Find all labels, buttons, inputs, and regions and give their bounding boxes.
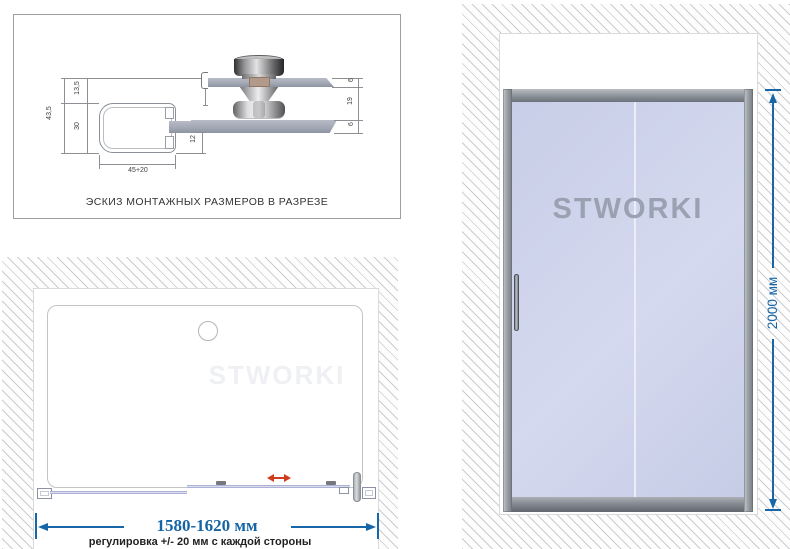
top-view-panel: STWORKI 1580-1620 мм регулировка +/- 20 … [2,257,398,549]
dim-end-tick [765,509,781,511]
roller-symbol [326,481,336,485]
dim-line-segment [291,526,367,528]
dim-end-tick [765,89,781,91]
fixed-glass-section [206,78,334,87]
ext-line [61,153,99,154]
ext-line [61,78,201,79]
ext-line [61,103,99,104]
dim-top-offset: 13,5 [74,73,82,103]
bottom-rail [503,497,753,512]
roller-symbol [216,481,226,485]
fixed-glass-line [50,491,187,494]
sliding-door: STWORKI [503,89,753,512]
seal-pin-foot [203,105,208,106]
sliding-glass-line [187,485,350,488]
wall-profile-right [744,89,753,512]
drain-circle [198,321,218,341]
panel-divider-line [634,102,636,497]
ext-line [175,155,176,169]
ext-line [176,153,206,154]
top-rail [503,89,753,102]
arrow-right-head [284,474,291,482]
profile-slot-top [165,107,174,119]
dim-line-segment [48,526,124,528]
dim-line [87,78,88,153]
dim-line [99,164,176,165]
dim-arrow-down [769,499,777,509]
dim-profile-width: 45+20 [115,167,161,175]
dim-total-height: 43,5 [46,98,54,128]
ext-line [334,133,363,134]
wall-profile-left-inner [40,491,49,496]
slide-direction-arrow [267,474,291,482]
width-dimension-label: 1580-1620 мм [123,516,291,536]
roller-cone [239,87,279,102]
ext-line [99,155,100,169]
dim-profile-height: 30 [74,111,82,141]
dim-line [358,78,359,133]
adjustment-note: регулировка +/- 20 мм с каждой стороны [2,536,398,548]
wall-profile-left [503,89,512,512]
dim-arrow-up [769,93,777,103]
dim-arrow-left [38,523,48,531]
brand-watermark: STWORKI [508,193,748,226]
seal-pin-line [205,89,206,106]
dim-glass-top-thickness: 6 [348,72,356,88]
door-end-bracket [339,487,349,494]
dim-glass-bottom-thickness: 6 [348,116,356,132]
glass-panels [512,102,744,497]
dim-line [202,132,203,153]
brand-watermark: STWORKI [157,360,397,391]
product-diagram: 43,5 13,5 30 45+20 12 6 19 6 ЭСКИЗ МОНТА… [0,0,790,549]
dim-line-segment [772,339,774,499]
dim-line [64,78,65,153]
door-glass-section [191,120,337,133]
dim-bottom-inset: 12 [190,131,198,147]
glass-clip-bracket [201,72,208,89]
profile-slot-bottom [165,136,174,149]
roller-mount-block [249,77,270,87]
roller-wheel [233,101,285,118]
front-view-panel: STWORKI 2000 мм [462,4,790,549]
dim-arrow-right [366,523,376,531]
wall-profile-right [362,487,376,499]
dim-glass-gap: 19 [347,93,355,109]
cross-section-panel: 43,5 13,5 30 45+20 12 6 19 6 ЭСКИЗ МОНТА… [13,14,401,219]
wall-profile-right-inner [365,490,373,496]
wall-profile-inner-line [103,107,172,149]
closing-profile [353,472,361,502]
roller-wheel-groove [253,101,265,118]
cross-section-caption: ЭСКИЗ МОНТАЖНЫХ РАЗМЕРОВ В РАЗРЕЗЕ [14,196,400,208]
door-handle [514,274,519,331]
